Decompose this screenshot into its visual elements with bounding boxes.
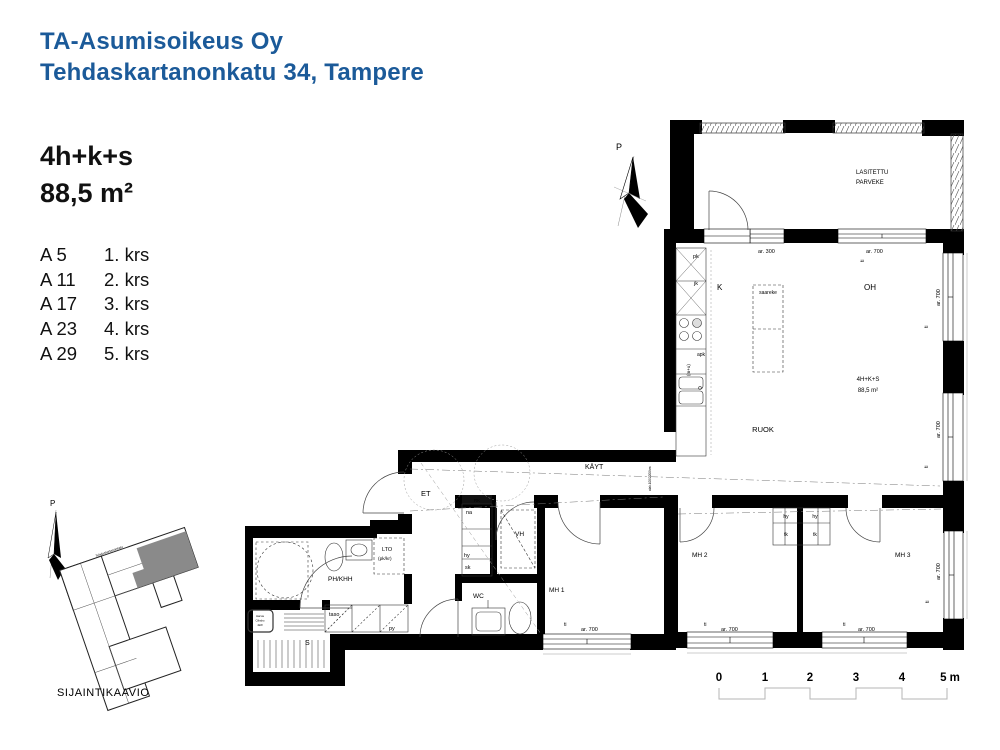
closets: [374, 504, 830, 576]
utility-counter: [325, 605, 408, 632]
sill-ti-mh2: ti: [704, 622, 707, 628]
balcony-label-line2: PARVEKE: [856, 180, 884, 186]
mh2-door: [680, 508, 714, 542]
kitchen-freezer-label: pk: [693, 254, 699, 260]
kitchen-island: [753, 285, 783, 372]
entry-door: [363, 472, 404, 513]
heater-note-line3: 4kW: [257, 623, 263, 627]
shower-area: [257, 542, 313, 598]
dim-ar700-right2: ar. 700: [936, 421, 942, 438]
wc-toilet: [509, 602, 531, 634]
sauna-benches: [258, 614, 324, 668]
sill-ti-mh3-right: ti: [925, 601, 931, 604]
wardrobe-tk-left: tk: [784, 532, 788, 538]
balcony-label-line1: LASITETTU: [856, 170, 888, 176]
walls: [245, 120, 964, 686]
window-mh2: [687, 632, 773, 648]
lto-label: LTO: [382, 547, 393, 553]
shelf-label: hy: [464, 553, 470, 559]
mh3-door: [846, 508, 880, 542]
scale-tick-4: 4: [899, 672, 906, 684]
scale-tick-5m: 5 m: [940, 672, 960, 684]
scale-bar: [719, 688, 947, 699]
window-ar300: [750, 229, 784, 243]
window-mh3-right: [944, 531, 963, 619]
electric-panel-label: RK: [474, 498, 480, 503]
sauna-label: S: [305, 640, 310, 647]
wardrobe-hy-right: hy: [812, 514, 818, 520]
bathroom-utility-label: PH/KHH: [328, 576, 353, 583]
dim-ar700-right1: ar. 700: [936, 289, 942, 306]
apartment-area-label: 88,5 m²: [858, 388, 878, 394]
site-caption: SIJAINTIKAAVIO: [57, 687, 150, 699]
bedroom1-label: MH 1: [549, 587, 565, 594]
kitchen-fridge-label: jk: [693, 281, 698, 287]
site-diagram: [48, 510, 233, 710]
scale-tick-1: 1: [762, 672, 769, 684]
walkin-closet-label: VH: [515, 531, 524, 538]
dim-ar700-mh3: ar. 700: [858, 627, 875, 633]
lto-niche: [374, 538, 404, 574]
island-label: saareke: [759, 290, 777, 296]
sink-phkhh: [346, 540, 372, 560]
dishwasher-label: apk: [697, 352, 706, 358]
dim-ar300: ar. 300: [758, 249, 775, 255]
lto-sub-label: (pk/kr): [378, 556, 392, 562]
window-living-right-1: [943, 253, 963, 341]
hallway-label: KÄYT: [585, 463, 604, 471]
doors: [300, 191, 880, 637]
entrance-label: ET: [421, 489, 431, 498]
scale-tick-0: 0: [716, 672, 722, 684]
wardrobe-tk-right: tk: [813, 532, 817, 538]
wardrobe-hy-left: hy: [783, 514, 789, 520]
coatrack-label: na: [466, 510, 473, 516]
washer-label: py: [389, 626, 395, 632]
sill-ti-right2: ti: [924, 466, 930, 469]
floorplan-page: TA-Asumisoikeus Oy Tehdaskartanonkatu 34…: [0, 0, 1000, 750]
bedroom2-label: MH 2: [692, 552, 708, 559]
sill-ti-mh1: ti: [564, 622, 567, 628]
window-ar700-top: [838, 229, 926, 243]
wc-label: WC: [473, 593, 484, 600]
balcony-door: [709, 191, 748, 230]
window-mh1: [543, 634, 631, 649]
north-arrow-label: P: [616, 142, 622, 152]
heater-note-line2: Cilindro: [255, 619, 265, 623]
dim-ar700-top: ar. 700: [866, 249, 883, 255]
windows: [543, 229, 967, 654]
cleaning-closet-label: sk: [465, 565, 471, 571]
window-mh3: [822, 632, 907, 648]
dim-ar700-mh2: ar. 700: [721, 627, 738, 633]
counter-label: taso: [329, 612, 339, 618]
sill-ti-right1: ti: [924, 326, 930, 329]
dim-ar700-mh1: ar. 700: [581, 627, 598, 633]
oven-micro-label: (m+u): [686, 364, 691, 376]
balcony-door-threshold: [704, 229, 750, 243]
wc-door: [420, 599, 458, 637]
livingroom-label: OH: [864, 283, 876, 292]
floor-plan-drawing: PLASITETTUPARVEKEar. 300ar. 700tipkjkKsa…: [0, 0, 1000, 750]
kitchen-label: K: [717, 283, 723, 292]
apartment-type-label: 4H+K+S: [857, 377, 880, 383]
scale-tick-2: 2: [807, 672, 813, 684]
balcony-glazing: [700, 123, 963, 231]
mh1-door: [558, 502, 600, 544]
scale-tick-3: 3: [853, 672, 859, 684]
bedroom3-label: MH 3: [895, 552, 911, 559]
dining-label: RUOK: [752, 425, 774, 434]
sill-ti-top: ti: [860, 260, 866, 263]
ceiling-note: alak.100/2200hm: [648, 466, 652, 491]
site-north-label: P: [50, 499, 55, 508]
site-footprint: [60, 528, 233, 711]
window-living-right-2: [943, 393, 963, 481]
north-arrow: [614, 156, 648, 228]
dim-ar700-mh3-right: ar. 700: [936, 563, 942, 580]
heater-note-line1: Harvia: [256, 614, 264, 618]
sill-ti-mh3: ti: [843, 622, 846, 628]
